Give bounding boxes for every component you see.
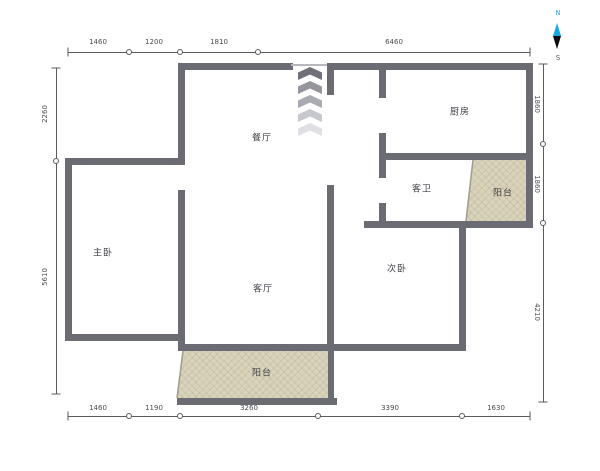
dimension-tick xyxy=(126,413,132,419)
entrance-arrow-icon xyxy=(298,67,322,80)
wall-top-left xyxy=(178,63,293,70)
entrance-arrow-icon xyxy=(298,109,322,122)
room-label-second-bedroom: 次卧 xyxy=(387,262,407,275)
dimension-label: 4210 xyxy=(533,303,541,321)
wall-master-top xyxy=(65,158,185,165)
compass-needle-south-icon xyxy=(553,36,561,49)
dimension-tick xyxy=(530,48,531,57)
dimension-label: 1860 xyxy=(533,175,541,193)
dimension-tick xyxy=(315,413,321,419)
entrance-arrow-icon xyxy=(298,81,322,94)
dimension-label: 5610 xyxy=(41,268,49,286)
room-label-living-room: 客厅 xyxy=(253,282,273,295)
wall-right-exterior xyxy=(526,63,533,228)
dimension-tick xyxy=(459,413,465,419)
dimension-label: 1860 xyxy=(533,95,541,113)
entry-threshold-line xyxy=(291,64,329,66)
dimension-tick xyxy=(177,49,183,55)
dimension-label: 1200 xyxy=(145,38,163,46)
wall-second-bedroom-right xyxy=(459,228,466,351)
room-label-kitchen: 厨房 xyxy=(450,105,470,118)
wall-top-right xyxy=(327,63,533,70)
dimension-tick xyxy=(68,412,69,421)
dimension-tick xyxy=(52,394,61,395)
dimension-label: 1810 xyxy=(210,38,228,46)
compass-south-label: S xyxy=(556,54,560,62)
room-label-guest-bathroom: 客卫 xyxy=(412,182,432,195)
dimension-tick xyxy=(177,413,183,419)
dimension-label: 1460 xyxy=(89,38,107,46)
wall-bath-bottom xyxy=(364,221,533,228)
wall-left-exterior xyxy=(65,158,72,341)
dimension-label: 2260 xyxy=(41,105,49,123)
entrance-arrow-icon xyxy=(298,95,322,108)
wall-master-living-divider xyxy=(178,190,185,351)
wall-dining-left xyxy=(178,63,185,165)
dimension-label: 3390 xyxy=(381,404,399,412)
room-label-balcony-bottom: 阳台 xyxy=(252,366,272,379)
room-label-balcony-right: 阳台 xyxy=(493,186,513,199)
wall-central-main xyxy=(327,185,334,405)
dimension-tick xyxy=(52,68,61,69)
room-label-dining: 餐厅 xyxy=(252,131,272,144)
dimension-label: 3260 xyxy=(240,404,258,412)
room-label-master-bedroom: 主卧 xyxy=(93,246,113,259)
dimension-label: 1190 xyxy=(145,404,163,412)
entrance-arrow-icon xyxy=(298,123,322,136)
wall-bath-left-upper xyxy=(379,160,386,178)
compass-north-label: N xyxy=(555,9,560,17)
floor-plan: 餐厅 厨房 客卫 阳台 主卧 客厅 次卧 阳台 1460 1200 1810 6… xyxy=(0,0,600,471)
compass-needle-north-icon xyxy=(553,23,561,36)
dimension-tick xyxy=(53,158,59,164)
dimension-line-right xyxy=(543,64,544,402)
dimension-label: 1630 xyxy=(487,404,505,412)
dimension-line-top xyxy=(68,52,530,53)
dimension-tick xyxy=(539,64,548,65)
wall-kitchen-left-upper xyxy=(379,63,386,98)
dimension-label: 6460 xyxy=(385,38,403,46)
wall-central-top-stub xyxy=(327,63,334,95)
dimension-tick xyxy=(540,220,546,226)
dimension-tick xyxy=(255,49,261,55)
wall-master-bottom xyxy=(65,334,185,341)
dimension-label: 1460 xyxy=(89,404,107,412)
dimension-tick xyxy=(540,141,546,147)
dimension-tick xyxy=(530,412,531,421)
wall-south xyxy=(178,344,466,351)
dimension-tick xyxy=(126,49,132,55)
dimension-tick xyxy=(68,48,69,57)
wall-kitchen-bottom xyxy=(379,153,533,160)
dimension-tick xyxy=(539,402,548,403)
dimension-line-left xyxy=(56,68,57,394)
